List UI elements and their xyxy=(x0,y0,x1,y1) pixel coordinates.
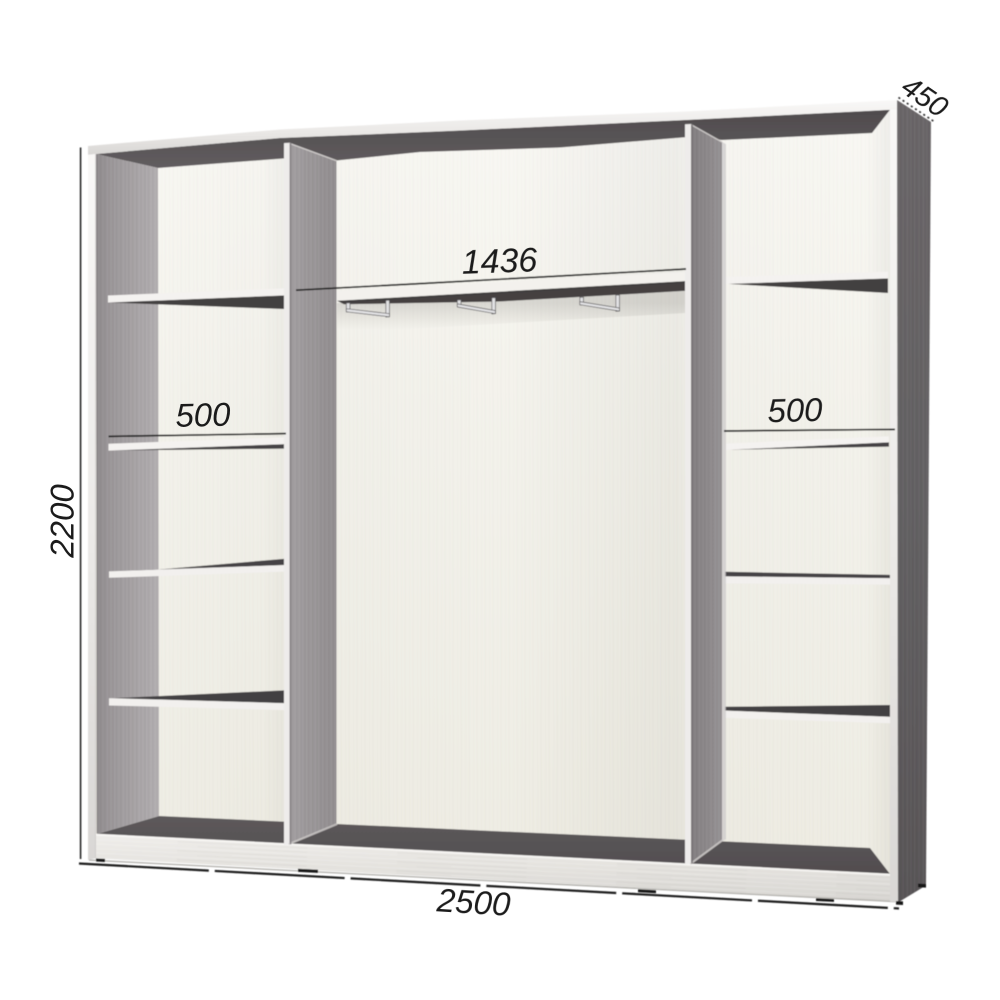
svg-text:2200: 2200 xyxy=(44,484,81,559)
svg-text:500: 500 xyxy=(175,395,232,433)
svg-text:2500: 2500 xyxy=(435,881,512,923)
svg-text:1436: 1436 xyxy=(461,241,538,282)
svg-text:500: 500 xyxy=(767,391,824,429)
